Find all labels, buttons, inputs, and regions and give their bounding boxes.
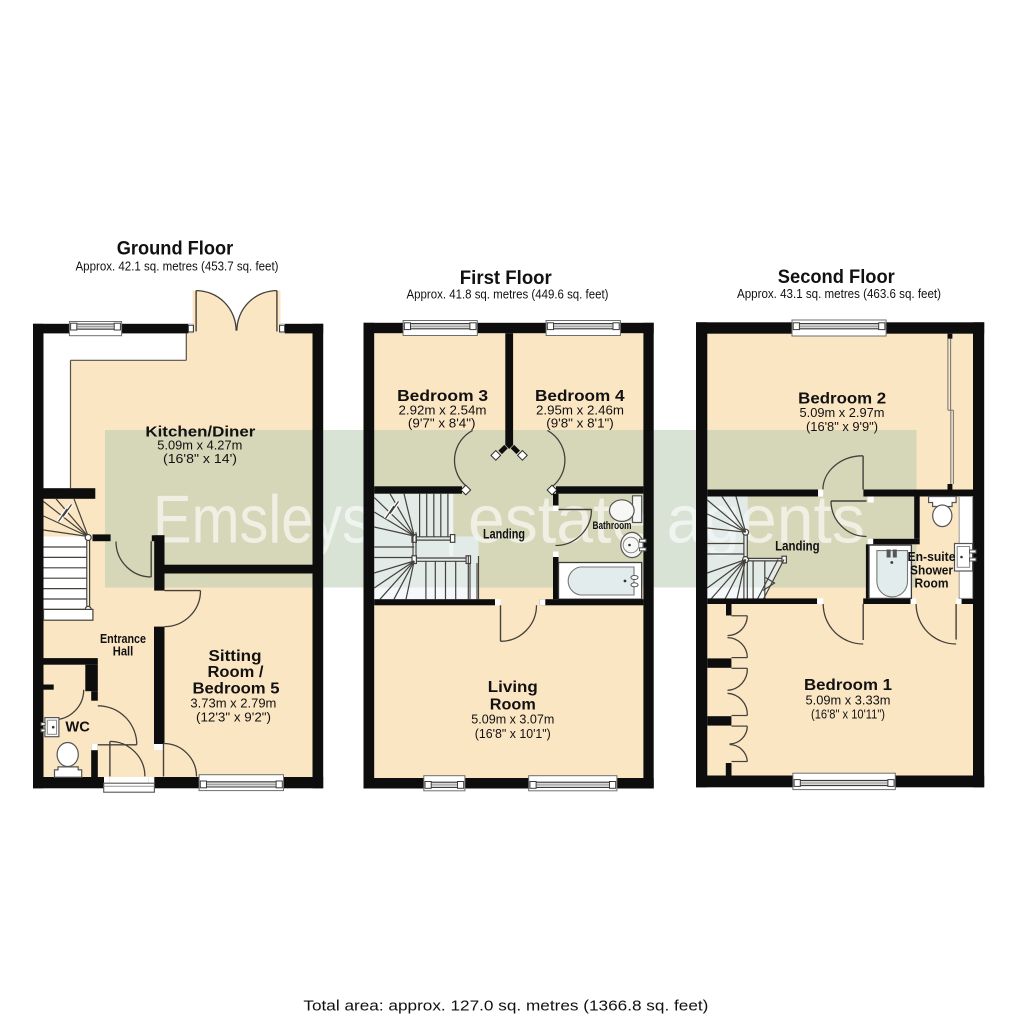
svg-text:En-suite: En-suite [908, 550, 956, 564]
svg-text:(16'8" x 10'1"): (16'8" x 10'1") [475, 726, 551, 741]
svg-text:Room /: Room / [208, 664, 265, 681]
svg-text:Second Floor: Second Floor [778, 267, 896, 288]
svg-text:5.09m x 3.07m: 5.09m x 3.07m [471, 712, 554, 727]
svg-text:Landing: Landing [483, 526, 525, 541]
svg-text:Bathroom: Bathroom [593, 520, 632, 532]
svg-text:Sitting: Sitting [209, 648, 262, 665]
svg-text:Emsleys: Emsleys [153, 482, 371, 558]
svg-text:3.73m x 2.79m: 3.73m x 2.79m [190, 696, 276, 711]
svg-text:Shower: Shower [910, 563, 953, 577]
svg-text:5.09m x 3.33m: 5.09m x 3.33m [806, 693, 891, 708]
svg-text:(16'8" x 10'11"): (16'8" x 10'11") [811, 707, 885, 722]
svg-text:(16'8" x 14'): (16'8" x 14') [163, 451, 237, 466]
svg-text:(9'8" x 8'1"): (9'8" x 8'1") [546, 416, 614, 431]
svg-text:(16'8" x 9'9"): (16'8" x 9'9") [806, 419, 878, 434]
svg-text:Living: Living [488, 679, 538, 696]
svg-text:Room: Room [915, 577, 949, 591]
svg-text:(9'7" x 8'4"): (9'7" x 8'4") [408, 416, 476, 431]
svg-text:Total area: approx. 127.0 sq.: Total area: approx. 127.0 sq. metres (13… [303, 998, 708, 1015]
svg-text:Ground Floor: Ground Floor [117, 239, 234, 260]
svg-text:(12'3" x 9'2"): (12'3" x 9'2") [196, 710, 271, 725]
svg-text:Approx. 41.8 sq. metres (449.6: Approx. 41.8 sq. metres (449.6 sq. feet) [407, 287, 609, 302]
svg-text:Landing: Landing [775, 539, 820, 554]
svg-text:Approx. 42.1 sq. metres (453.7: Approx. 42.1 sq. metres (453.7 sq. feet) [76, 259, 279, 274]
svg-text:Hall: Hall [113, 644, 134, 659]
svg-text:Bedroom 1: Bedroom 1 [804, 677, 892, 694]
svg-text:Approx. 43.1 sq. metres (463.6: Approx. 43.1 sq. metres (463.6 sq. feet) [737, 286, 941, 301]
svg-text:5.09m x 2.97m: 5.09m x 2.97m [800, 405, 885, 420]
svg-text:WC: WC [65, 719, 90, 736]
